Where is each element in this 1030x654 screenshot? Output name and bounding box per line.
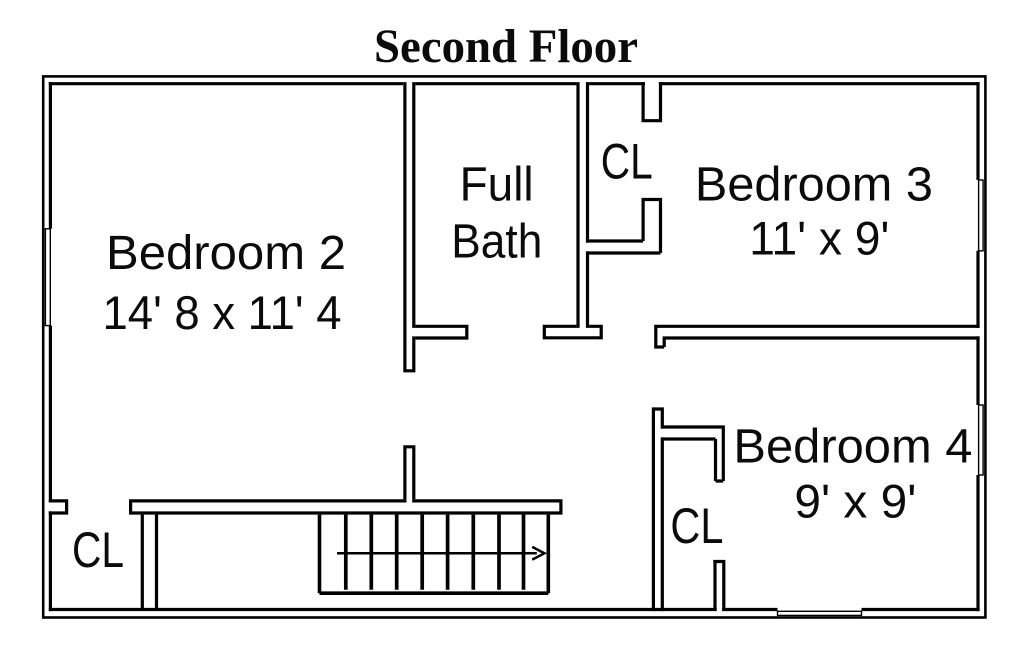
svg-text:Bedroom 4: Bedroom 4 [733, 421, 972, 474]
svg-text:9' x 9': 9' x 9' [794, 475, 916, 528]
svg-text:CL: CL [670, 498, 723, 554]
svg-text:Bedroom 3: Bedroom 3 [695, 158, 933, 211]
svg-text:CL: CL [72, 522, 124, 578]
svg-text:Second Floor: Second Floor [374, 20, 638, 73]
svg-text:Bath: Bath [451, 216, 542, 269]
svg-text:Full: Full [460, 159, 534, 212]
svg-text:CL: CL [601, 134, 653, 190]
svg-text:14' 8 x 11' 4: 14' 8 x 11' 4 [103, 286, 342, 339]
svg-text:11' x 9': 11' x 9' [749, 212, 889, 265]
svg-text:Bedroom 2: Bedroom 2 [106, 227, 346, 280]
